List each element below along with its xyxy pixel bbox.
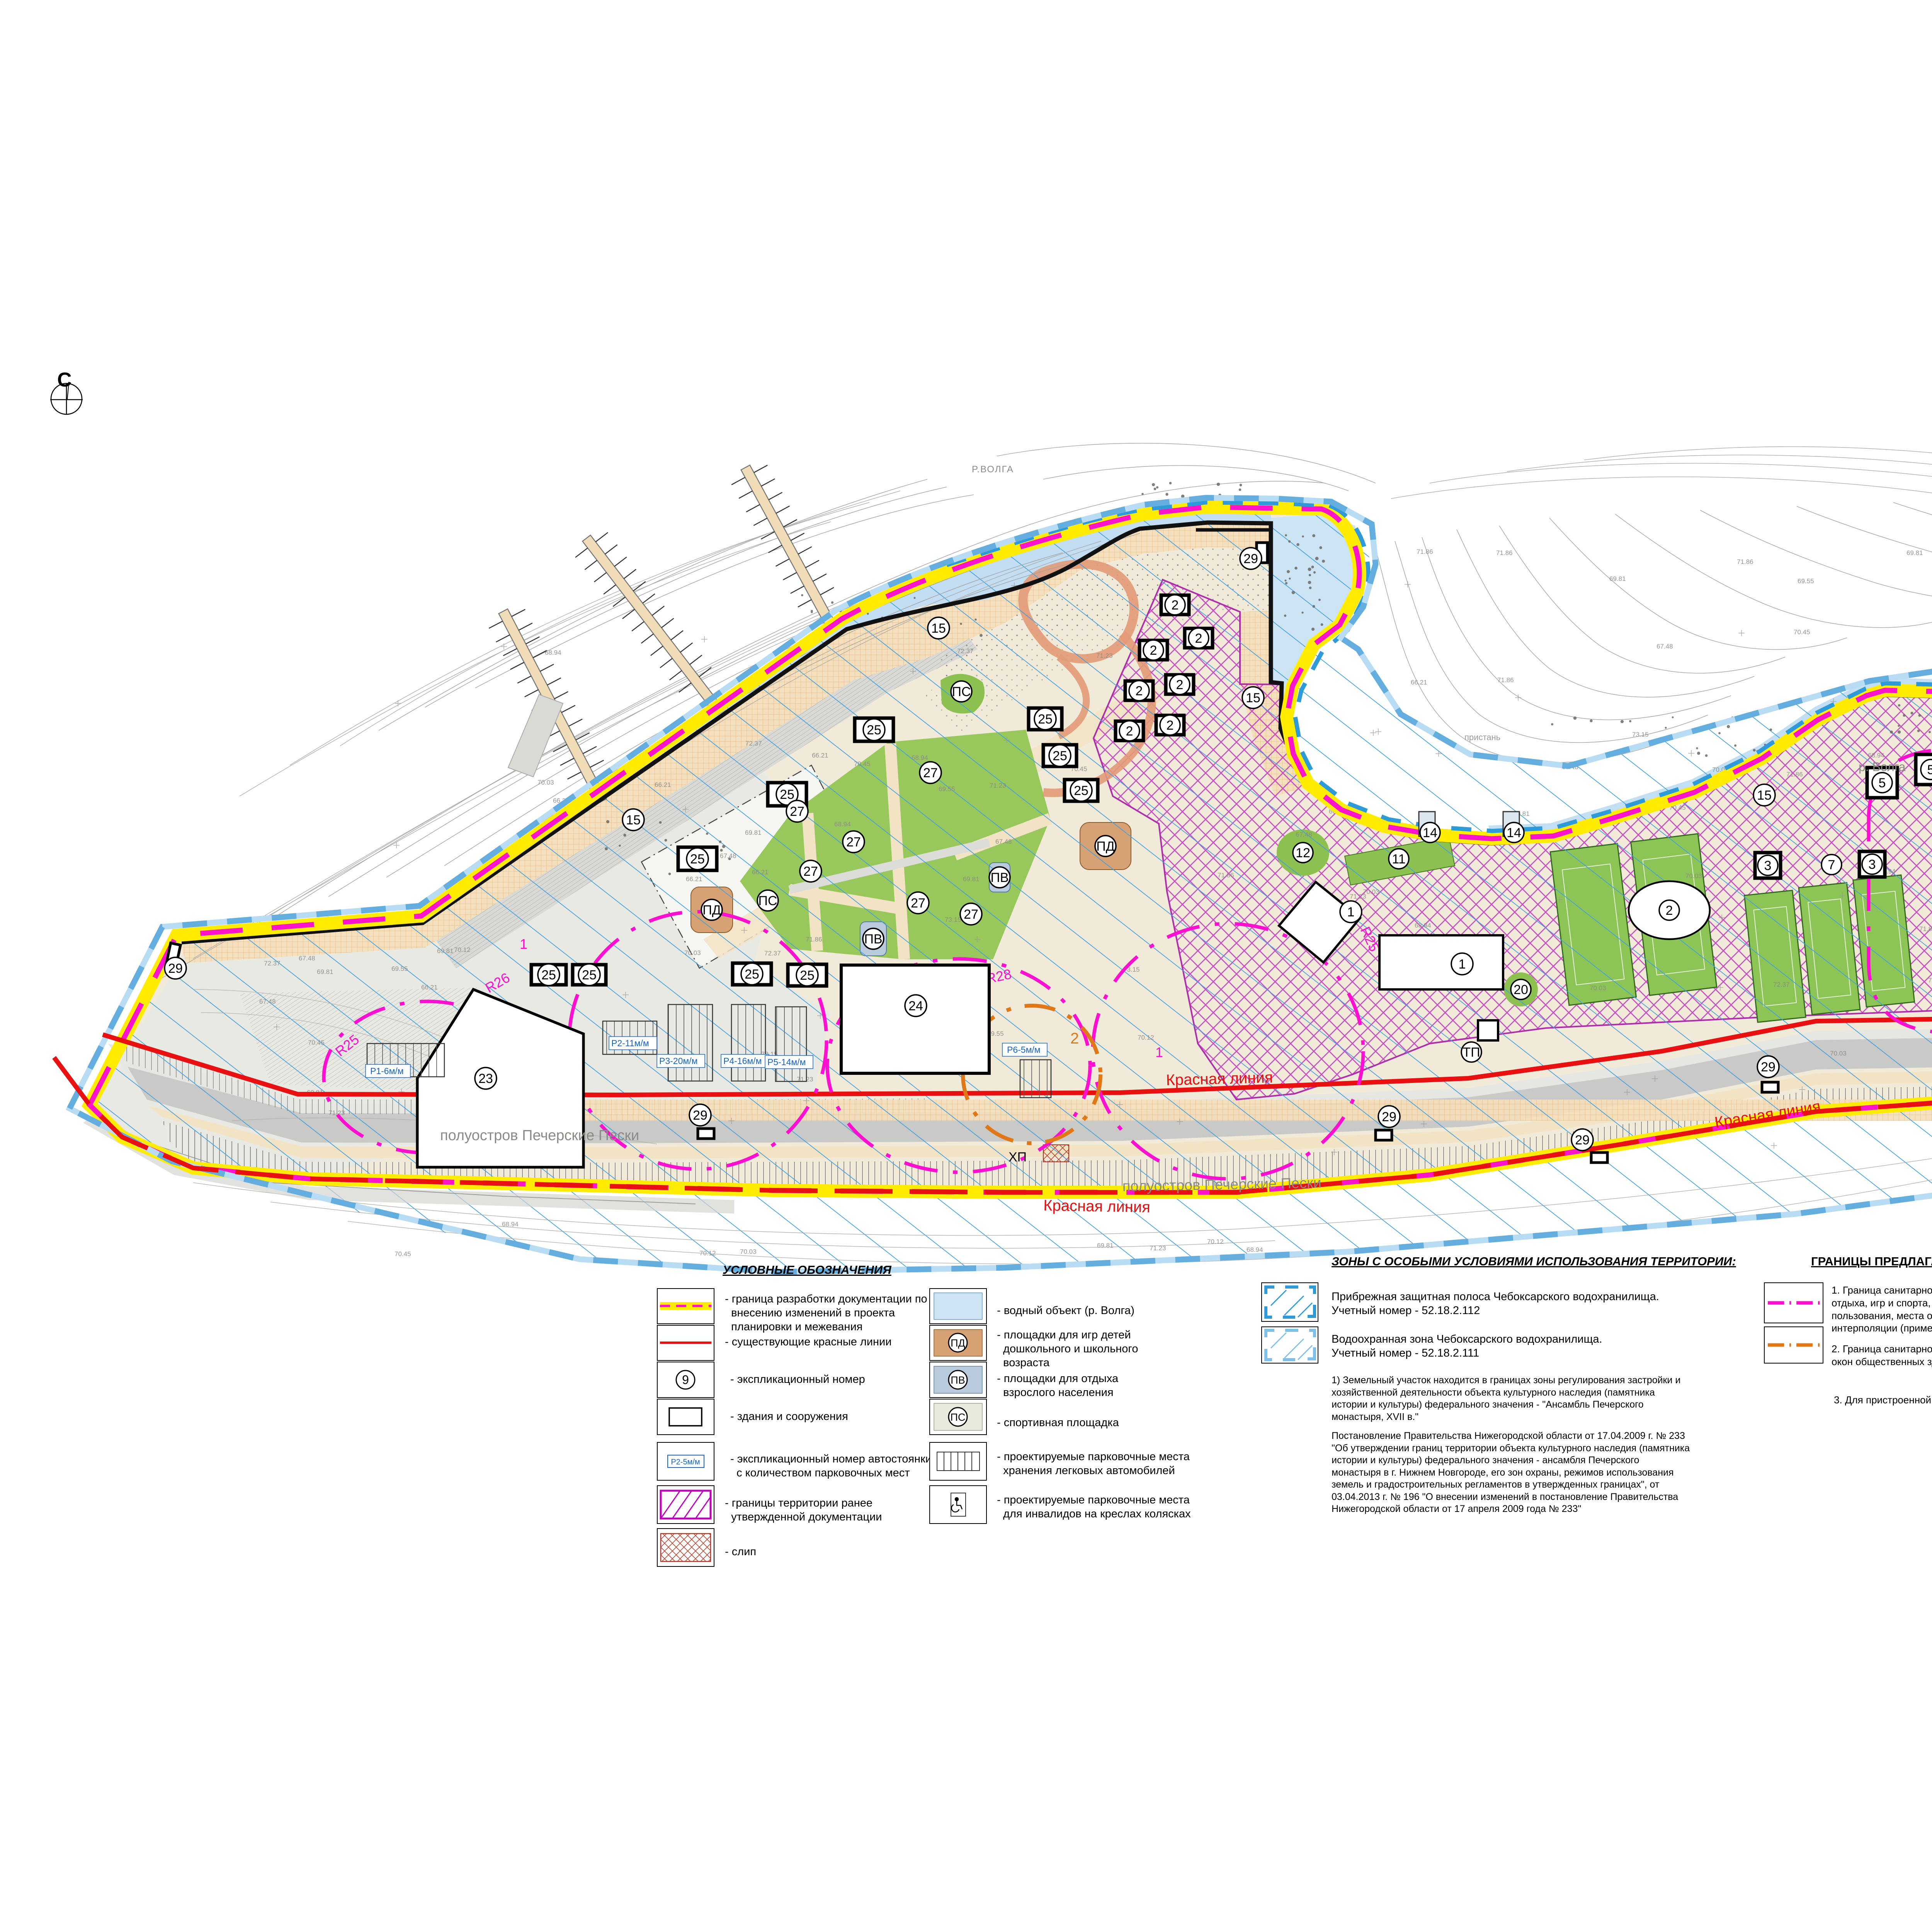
svg-text:70.45: 70.45 — [1794, 628, 1810, 636]
svg-text:69.81: 69.81 — [1906, 549, 1923, 557]
svg-text:2: 2 — [1150, 643, 1157, 658]
svg-text:15: 15 — [626, 813, 641, 827]
svg-text:1: 1 — [520, 936, 527, 952]
svg-text:66.21: 66.21 — [752, 868, 769, 876]
svg-text:27: 27 — [846, 835, 861, 850]
svg-text:Р4-16м/м: Р4-16м/м — [723, 1056, 762, 1066]
svg-text:67.48: 67.48 — [1296, 831, 1312, 838]
svg-text:67.48: 67.48 — [299, 955, 315, 962]
svg-text:68.94: 68.94 — [1868, 752, 1884, 759]
svg-text:72.37: 72.37 — [745, 740, 762, 747]
svg-text:68.94: 68.94 — [1247, 1246, 1263, 1253]
svg-text:27: 27 — [964, 907, 978, 922]
svg-text:69.81: 69.81 — [745, 829, 762, 836]
svg-text:25: 25 — [780, 787, 794, 802]
svg-text:70.12: 70.12 — [454, 946, 471, 953]
svg-text:12: 12 — [1296, 846, 1310, 860]
svg-text:71.86: 71.86 — [1417, 548, 1433, 555]
svg-text:25: 25 — [867, 723, 881, 737]
svg-text:Р1-6м/м: Р1-6м/м — [370, 1066, 404, 1076]
svg-text:ПС: ПС — [951, 1411, 966, 1423]
svg-text:15: 15 — [931, 621, 946, 636]
svg-text:Р.ВОЛГА: Р.ВОЛГА — [972, 464, 1014, 475]
svg-text:71.86: 71.86 — [1496, 549, 1513, 557]
svg-text:5: 5 — [1879, 776, 1886, 790]
svg-text:29: 29 — [1761, 1060, 1776, 1074]
svg-text:р. Волга: р. Волга — [1859, 760, 1906, 774]
svg-text:69.81: 69.81 — [317, 968, 333, 976]
svg-text:7: 7 — [1828, 858, 1835, 872]
svg-text:27: 27 — [911, 896, 925, 911]
svg-text:25: 25 — [690, 852, 705, 867]
svg-text:68.94: 68.94 — [912, 754, 928, 761]
svg-text:29: 29 — [1382, 1110, 1396, 1124]
svg-text:полуостров Печерские Пески: полуостров Печерские Пески — [1122, 1175, 1321, 1195]
svg-text:68.94: 68.94 — [1415, 922, 1431, 929]
svg-text:2: 2 — [1167, 718, 1174, 733]
svg-text:73.15: 73.15 — [945, 916, 961, 923]
svg-text:29: 29 — [1575, 1133, 1590, 1147]
svg-text:2: 2 — [1126, 724, 1133, 739]
svg-text:3: 3 — [1764, 858, 1772, 873]
svg-text:69.81: 69.81 — [963, 875, 980, 883]
svg-text:71.86: 71.86 — [1497, 676, 1514, 684]
svg-text:С: С — [57, 369, 72, 391]
svg-text:66.21: 66.21 — [812, 752, 828, 759]
svg-text:67.48: 67.48 — [995, 838, 1012, 845]
svg-text:15: 15 — [1757, 788, 1772, 803]
svg-text:25: 25 — [1074, 783, 1088, 798]
svg-text:Красная линия: Красная линия — [1043, 1197, 1150, 1216]
svg-text:Р6-5м/м: Р6-5м/м — [1007, 1045, 1041, 1055]
svg-text:70.03: 70.03 — [1830, 1050, 1847, 1057]
svg-text:20: 20 — [1514, 982, 1528, 997]
svg-text:ПД: ПД — [951, 1337, 965, 1349]
svg-text:1: 1 — [1155, 1044, 1163, 1060]
svg-text:ПД: ПД — [702, 903, 721, 918]
svg-text:73.15: 73.15 — [1928, 977, 1932, 984]
svg-text:70.03: 70.03 — [684, 949, 701, 957]
svg-text:29: 29 — [693, 1108, 707, 1123]
svg-text:ПВ: ПВ — [951, 1374, 965, 1386]
svg-text:70.03: 70.03 — [537, 779, 554, 786]
svg-text:72.37: 72.37 — [957, 647, 974, 655]
svg-text:71.86: 71.86 — [1786, 771, 1803, 778]
svg-text:72.37: 72.37 — [1773, 981, 1790, 988]
svg-text:25: 25 — [745, 967, 759, 982]
svg-text:70.45: 70.45 — [308, 1039, 325, 1046]
svg-text:71.86: 71.86 — [1919, 925, 1932, 933]
svg-text:ПС: ПС — [952, 684, 971, 699]
svg-text:ПС: ПС — [759, 894, 777, 908]
svg-text:29: 29 — [1243, 552, 1258, 566]
svg-text:3: 3 — [1869, 857, 1876, 872]
svg-text:1: 1 — [1347, 905, 1355, 919]
svg-text:пристань: пристань — [1464, 732, 1500, 742]
svg-text:Красная линия: Красная линия — [1166, 1069, 1273, 1089]
svg-text:68.94: 68.94 — [545, 649, 561, 656]
svg-text:ПВ: ПВ — [990, 870, 1009, 885]
svg-text:25: 25 — [541, 968, 556, 982]
svg-text:25: 25 — [1053, 749, 1067, 763]
svg-text:Р2-5м/м: Р2-5м/м — [671, 1458, 700, 1466]
svg-text:ХП: ХП — [1009, 1150, 1027, 1165]
svg-text:2: 2 — [1195, 631, 1202, 646]
svg-text:69.81: 69.81 — [1609, 575, 1626, 582]
svg-text:69.55: 69.55 — [391, 965, 408, 972]
svg-text:71.86: 71.86 — [1218, 872, 1234, 879]
svg-text:71.86: 71.86 — [1737, 558, 1753, 565]
svg-text:67.48: 67.48 — [1656, 643, 1673, 650]
svg-text:27: 27 — [923, 766, 938, 780]
svg-text:2: 2 — [1070, 1030, 1079, 1047]
svg-text:66.21: 66.21 — [421, 984, 438, 991]
svg-text:14: 14 — [1507, 826, 1521, 840]
svg-text:5: 5 — [1927, 763, 1932, 777]
svg-text:Р2-11м/м: Р2-11м/м — [611, 1038, 649, 1048]
svg-text:71.23: 71.23 — [990, 782, 1006, 789]
svg-text:9: 9 — [682, 1373, 689, 1387]
svg-text:66.21: 66.21 — [1411, 679, 1427, 686]
svg-text:27: 27 — [790, 804, 804, 819]
svg-text:2: 2 — [1666, 903, 1673, 918]
svg-text:72.37: 72.37 — [264, 960, 281, 967]
svg-text:69.55: 69.55 — [1798, 577, 1814, 585]
svg-text:73.15: 73.15 — [1632, 731, 1649, 738]
svg-text:71.23: 71.23 — [1150, 1245, 1166, 1252]
svg-text:69.81: 69.81 — [1097, 1242, 1114, 1249]
svg-text:2: 2 — [1136, 684, 1143, 698]
svg-text:23: 23 — [478, 1071, 493, 1086]
svg-text:24: 24 — [908, 999, 923, 1013]
svg-text:27: 27 — [803, 864, 818, 879]
svg-text:68.94: 68.94 — [502, 1221, 519, 1228]
svg-text:70.03: 70.03 — [1363, 888, 1379, 896]
svg-text:66.21: 66.21 — [686, 875, 702, 883]
svg-text:11: 11 — [1392, 852, 1405, 867]
svg-text:14: 14 — [1423, 826, 1437, 840]
svg-text:66.21: 66.21 — [655, 781, 671, 788]
svg-text:2: 2 — [1176, 678, 1184, 692]
svg-text:67.48: 67.48 — [720, 852, 736, 860]
svg-text:69.81: 69.81 — [437, 947, 454, 955]
svg-text:67.48: 67.48 — [259, 998, 276, 1005]
svg-text:1: 1 — [1459, 957, 1466, 972]
svg-text:70.45: 70.45 — [395, 1250, 411, 1258]
svg-text:68.94: 68.94 — [834, 821, 851, 828]
svg-text:29: 29 — [168, 961, 183, 976]
svg-text:70.45: 70.45 — [854, 760, 871, 768]
svg-text:ТП: ТП — [1463, 1045, 1480, 1060]
svg-text:70.03: 70.03 — [740, 1248, 757, 1255]
svg-text:71.86: 71.86 — [806, 936, 822, 943]
svg-text:ПД: ПД — [1096, 839, 1114, 854]
svg-text:25: 25 — [582, 968, 597, 982]
svg-text:ПВ: ПВ — [864, 932, 882, 947]
svg-text:2: 2 — [1172, 598, 1179, 613]
svg-text:25: 25 — [800, 968, 815, 983]
svg-text:15: 15 — [1246, 691, 1260, 705]
svg-text:72.37: 72.37 — [764, 950, 781, 957]
svg-text:Р3-20м/м: Р3-20м/м — [659, 1056, 697, 1066]
svg-text:полуостров Печерские Пески: полуостров Печерские Пески — [440, 1127, 639, 1144]
svg-text:71.23: 71.23 — [1096, 652, 1113, 659]
svg-text:70.12: 70.12 — [1207, 1238, 1224, 1245]
svg-text:69.55: 69.55 — [939, 785, 955, 793]
svg-text:70.03: 70.03 — [1685, 872, 1702, 880]
svg-text:70.03: 70.03 — [1590, 984, 1606, 992]
svg-text:70.12: 70.12 — [1138, 1034, 1154, 1041]
svg-text:Р5-14м/м: Р5-14м/м — [767, 1057, 806, 1067]
svg-text:25: 25 — [1038, 712, 1053, 727]
